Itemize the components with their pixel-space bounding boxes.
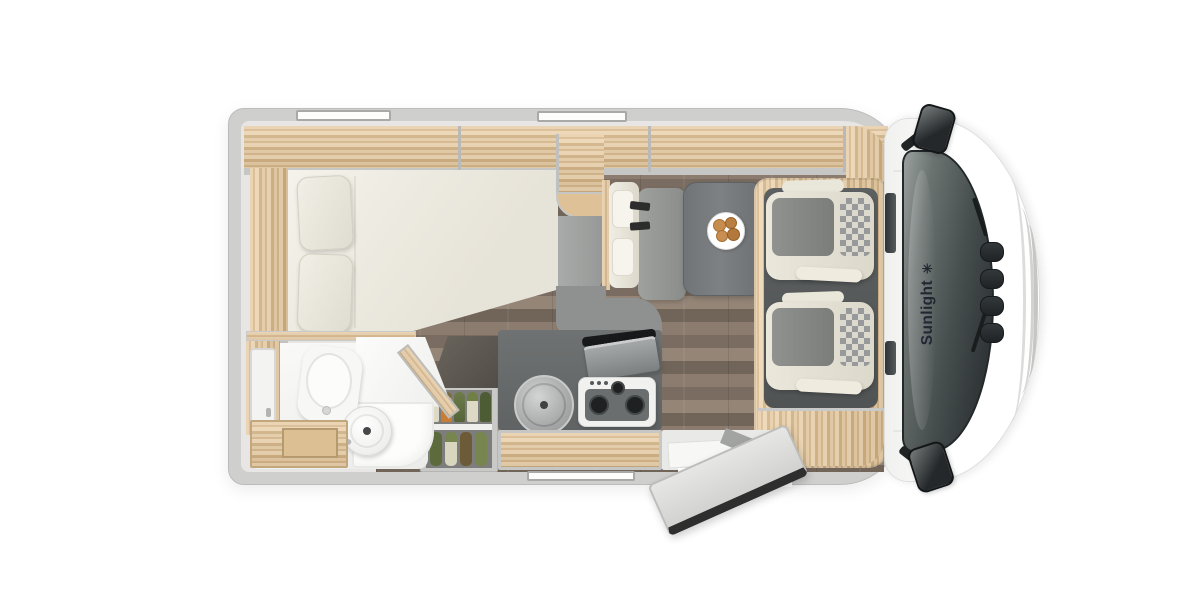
sun-asterisk-icon: ✳ (920, 263, 936, 274)
cab-seat-headrest-pattern (840, 198, 870, 256)
cab-seat-cushion (772, 308, 834, 366)
pantry-item-leek (467, 392, 478, 422)
roof-window-slot-rear (296, 110, 391, 121)
kitchen-drawer-front (498, 430, 662, 470)
cab-seat-cushion (772, 198, 834, 256)
vanity-handle (266, 408, 271, 417)
partition-wardrobe (556, 134, 604, 194)
motorhome-floorplan-canvas: Sunlight ✳ (0, 0, 1200, 600)
vanity-door (250, 348, 276, 428)
brand-logo: Sunlight ✳ (919, 263, 937, 345)
pantry-shelf (426, 424, 492, 430)
cab-side-window (885, 193, 896, 253)
food-item (727, 228, 740, 241)
cab-seat-headrest-pattern (840, 308, 870, 366)
counter-recess (282, 428, 338, 458)
stove-knob (604, 381, 608, 385)
bench-headrest (612, 238, 634, 276)
pantry-item-greens (475, 432, 487, 466)
stove-burner (625, 395, 645, 415)
bed-pillow (297, 253, 354, 333)
pantry-item-greens (480, 392, 491, 422)
cab-side-window (885, 341, 896, 375)
stove-knob (597, 381, 601, 385)
stove-burner (589, 395, 609, 415)
front-bumper-edge (1024, 225, 1038, 377)
pantry-item-root-veg (460, 432, 472, 466)
pantry-item-leek (445, 432, 457, 466)
cabinet-divider (648, 126, 651, 172)
bed-crease (354, 176, 356, 328)
dresser-top (558, 216, 602, 290)
rear-wardrobe-shelf (250, 168, 288, 340)
brand-label: Sunlight (919, 280, 937, 345)
bed-pillow (296, 175, 354, 252)
stove-knob (590, 381, 594, 385)
wall-window-slot-kitchen (527, 471, 635, 481)
bathroom-sink-drain (363, 427, 371, 435)
roof-window-slot-mid (537, 111, 627, 122)
toilet-lid (306, 353, 352, 409)
kitchen-sink-drain (540, 401, 548, 409)
toilet-flush-button (322, 406, 331, 415)
stove-burner (611, 381, 625, 395)
cabinet-divider (458, 126, 461, 172)
seatbelt-buckle (630, 221, 651, 230)
